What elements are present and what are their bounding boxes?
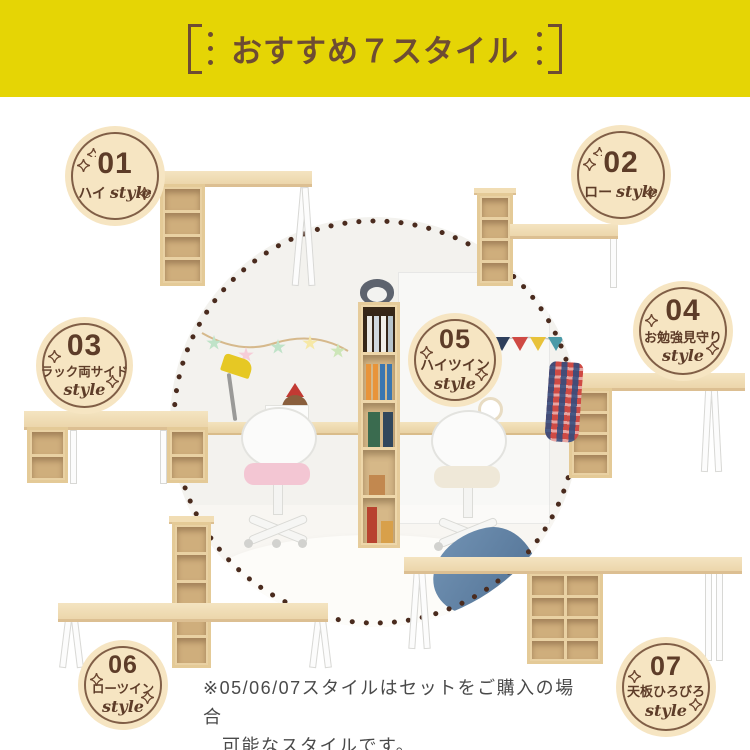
badge-ring — [622, 643, 710, 731]
bracket-icon — [548, 24, 562, 74]
sparkle-icon — [593, 147, 602, 156]
style-badge-06: 06 ローツインstyle — [78, 640, 168, 730]
right-bracket-ornament — [537, 24, 562, 74]
style-badge-02: 02 ロー style — [571, 125, 671, 225]
badge-ring — [414, 319, 496, 401]
product-style-banner: おすすめ７スタイル — [0, 0, 750, 750]
sparkle-icon — [420, 346, 433, 359]
sparkle-icon — [48, 350, 61, 363]
badge-ring — [42, 323, 127, 408]
sparkle-icon — [644, 186, 657, 199]
badge-ring — [639, 287, 727, 375]
sparkle-icon — [689, 698, 702, 711]
sparkle-icon — [645, 314, 658, 327]
style-badge-07: 07 天板ひろびろstyle — [616, 637, 716, 737]
sparkle-icon — [583, 158, 596, 171]
page-title: おすすめ７スタイル — [231, 26, 519, 71]
set-purchase-note: ※05/06/07スタイルはセットをご購入の場合 可能なスタイルです。 — [203, 674, 593, 750]
plaid-shirt — [544, 361, 583, 443]
sparkle-icon — [475, 368, 488, 381]
style-badge-04: 04 お勉強見守りstyle — [633, 281, 733, 381]
style-badge-05: 05 ハイツインstyle — [408, 313, 502, 407]
sparkle-icon — [87, 148, 96, 157]
note-line-1: ※05/06/07スタイルはセットをご購入の場合 — [203, 674, 593, 732]
dots-icon — [537, 32, 542, 65]
center-shelf-tower — [358, 302, 400, 548]
bracket-icon — [188, 24, 202, 74]
sparkle-icon — [77, 159, 90, 172]
note-line-2: 可能なスタイルです。 — [203, 732, 593, 750]
style-badge-01: 01 ハイ style — [65, 126, 165, 226]
sparkle-icon — [138, 187, 151, 200]
badge-ring — [577, 131, 665, 219]
sparkle-icon — [141, 691, 154, 704]
badge-ring — [71, 132, 159, 220]
sparkle-icon — [706, 342, 719, 355]
sparkle-icon — [106, 375, 119, 388]
left-chair — [232, 407, 322, 557]
dots-icon — [208, 32, 213, 65]
style-badge-03: 03 ラック両サイドstyle — [36, 317, 133, 414]
header-band: おすすめ７スタイル — [0, 0, 750, 97]
flag-bunting — [492, 333, 572, 363]
left-bracket-ornament — [188, 24, 213, 74]
sparkle-icon — [90, 673, 103, 686]
sparkle-icon — [628, 670, 641, 683]
